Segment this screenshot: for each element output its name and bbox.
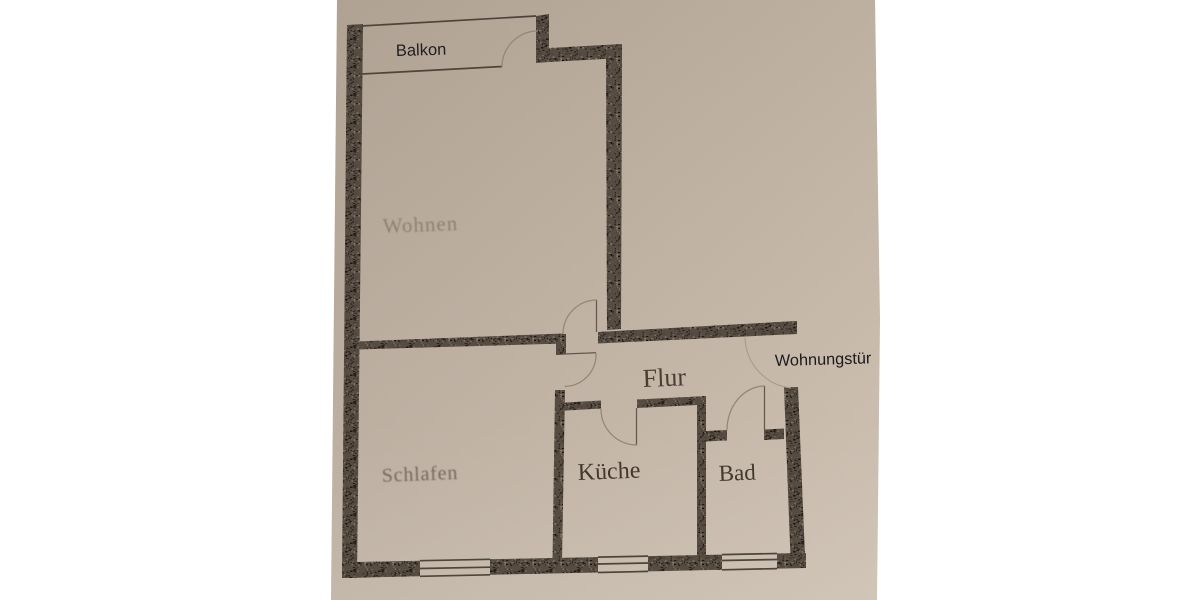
svg-text:Wohnen: Wohnen [382, 211, 458, 238]
svg-text:Wohnungstür: Wohnungstür [775, 349, 873, 370]
svg-text:Flur: Flur [642, 362, 687, 393]
svg-text:Schlafen: Schlafen [381, 462, 458, 487]
svg-text:Bad: Bad [718, 460, 756, 486]
svg-text:Küche: Küche [577, 458, 641, 486]
svg-text:Balkon: Balkon [396, 41, 447, 60]
